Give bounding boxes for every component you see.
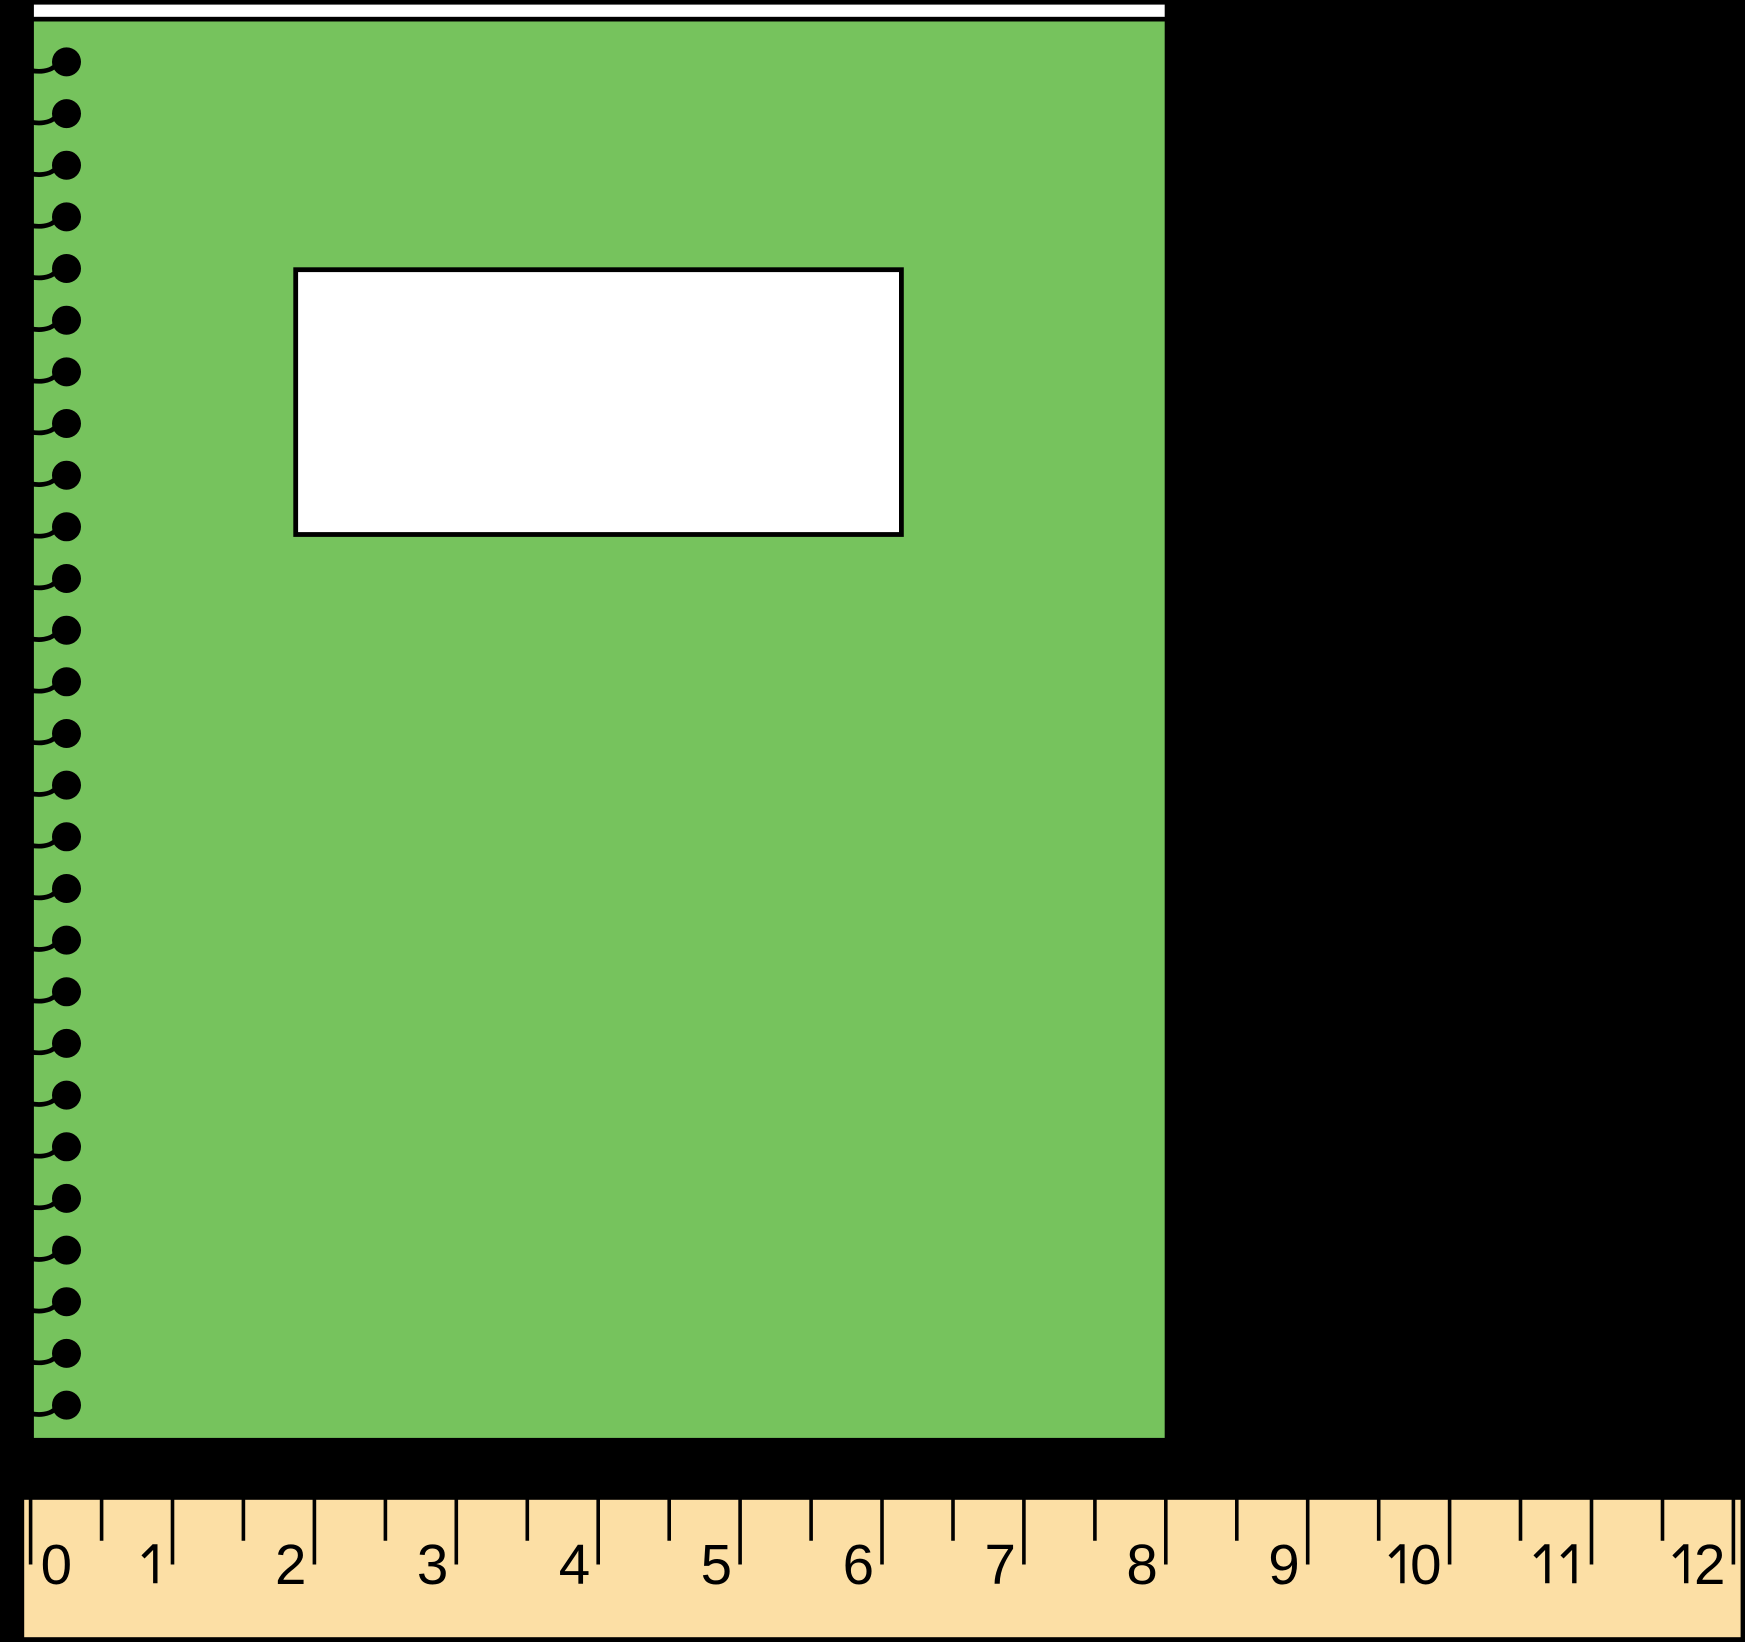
svg-text:5: 5 (701, 1533, 732, 1596)
svg-text:2: 2 (275, 1533, 306, 1596)
svg-text:6: 6 (843, 1533, 874, 1596)
svg-text:2: 2 (1694, 1533, 1725, 1596)
svg-text:0: 0 (41, 1533, 72, 1596)
svg-text:4: 4 (559, 1533, 590, 1596)
svg-text:7: 7 (984, 1533, 1015, 1596)
svg-text:8: 8 (1126, 1533, 1157, 1596)
svg-text:0: 0 (1410, 1533, 1441, 1596)
svg-text:9: 9 (1268, 1533, 1299, 1596)
svg-text:3: 3 (417, 1533, 448, 1596)
